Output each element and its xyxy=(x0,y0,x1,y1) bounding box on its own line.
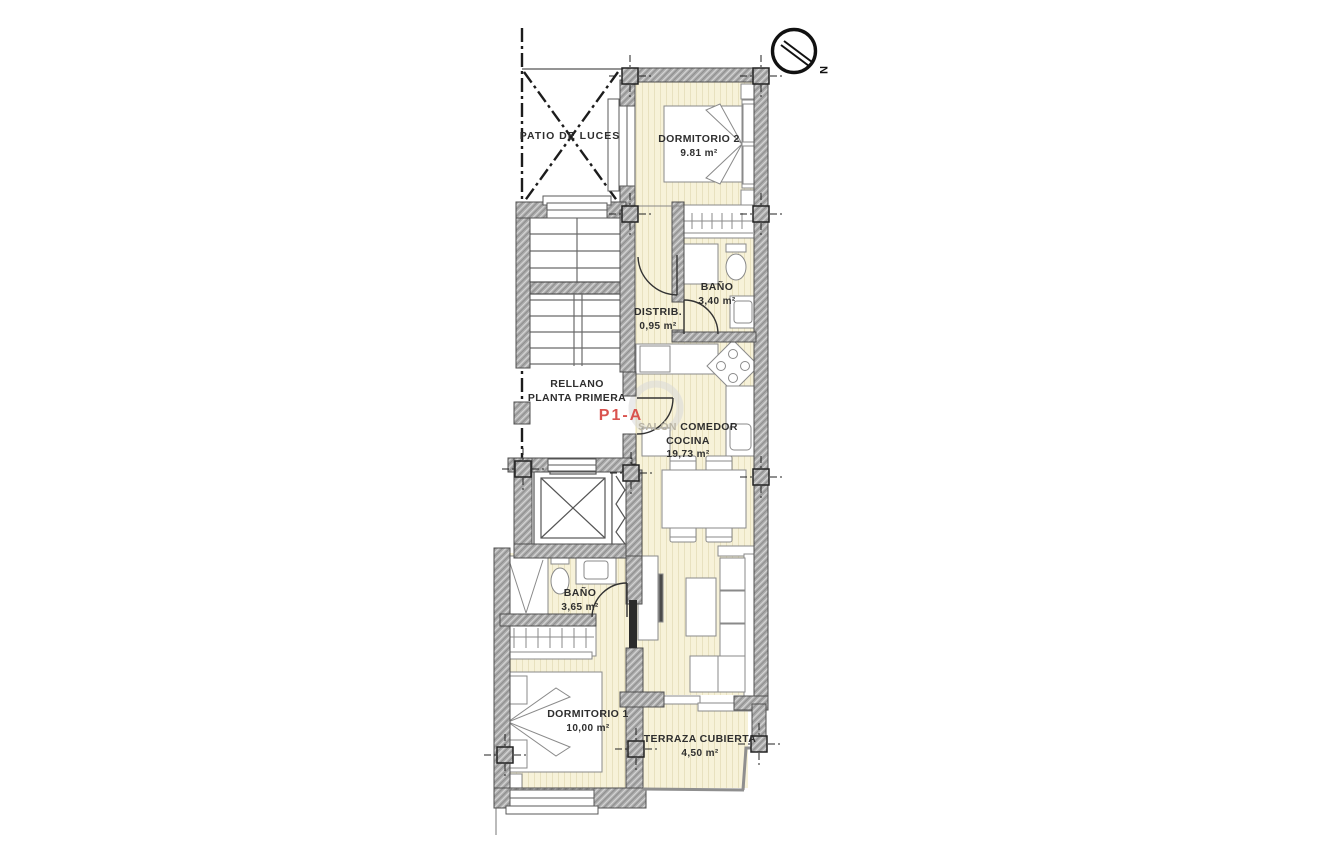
bano-superior-name: BAÑO xyxy=(698,281,735,295)
compass-circle xyxy=(773,30,816,73)
window-dormitorio2 xyxy=(608,99,635,191)
bano-superior-area: 3,40 m² xyxy=(698,295,735,308)
patio-name: PATIO DE LUCES xyxy=(520,130,621,142)
room-label-bano-inferior: BAÑO 3,65 m² xyxy=(561,587,598,614)
room-label-terraza: TERRAZA CUBIERTA 4,50 m² xyxy=(644,733,757,760)
room-label-salon: SALÓN COMEDOR COCINA 19,73 m² xyxy=(638,421,738,461)
compass-north-label: N xyxy=(817,66,829,74)
terraza-area: 4,50 m² xyxy=(644,747,757,760)
floor-plan-canvas: N PATIO DE LUCES DORMITORIO 2 9.81 m² BA… xyxy=(0,0,1320,859)
unit-label: P1-A xyxy=(599,406,643,427)
bano-inferior-name: BAÑO xyxy=(561,587,598,601)
room-label-distribuidor: DISTRIB. 0,95 m² xyxy=(634,306,682,333)
room-label-rellano: RELLANO PLANTA PRIMERA xyxy=(528,378,626,405)
rellano-line1: RELLANO xyxy=(528,378,626,392)
coffee-table xyxy=(686,578,716,636)
bano-inferior-area: 3,65 m² xyxy=(561,601,598,614)
salon-word-comedor: COMEDOR xyxy=(680,421,738,433)
salon-word-cocina: COCINA xyxy=(638,435,738,449)
distribuidor-name: DISTRIB. xyxy=(634,306,682,320)
dormitorio2-name: DORMITORIO 2 xyxy=(658,133,740,147)
dormitorio2-area: 9.81 m² xyxy=(658,147,740,160)
room-label-dormitorio1: DORMITORIO 1 10,00 m² xyxy=(547,708,629,735)
elevator xyxy=(534,466,628,546)
north-compass: N xyxy=(773,30,830,75)
washbasin xyxy=(584,561,608,579)
window-stair xyxy=(543,196,611,218)
dining-table xyxy=(662,470,746,528)
wardrobe-dormitorio2 xyxy=(682,205,755,238)
rellano-line2: PLANTA PRIMERA xyxy=(528,392,626,406)
salon-area: 19,73 m² xyxy=(638,448,738,461)
compass-needle xyxy=(781,41,812,66)
room-label-dormitorio2: DORMITORIO 2 9.81 m² xyxy=(658,133,740,160)
dormitorio1-area: 10,00 m² xyxy=(547,722,629,735)
window-dormitorio1 xyxy=(506,790,598,814)
room-label-patio: PATIO DE LUCES xyxy=(520,130,621,144)
room-label-bano-superior: BAÑO 3,40 m² xyxy=(698,281,735,308)
distribuidor-area: 0,95 m² xyxy=(634,320,682,333)
elevator-landing-door xyxy=(548,459,596,471)
staircase xyxy=(530,218,621,366)
dormitorio1-name: DORMITORIO 1 xyxy=(547,708,629,722)
door-leaf-dormitorio1 xyxy=(629,600,637,648)
salon-word-light: SALÓN xyxy=(638,421,677,433)
unit-label-text: P1-A xyxy=(599,407,643,424)
terraza-name: TERRAZA CUBIERTA xyxy=(644,733,757,747)
